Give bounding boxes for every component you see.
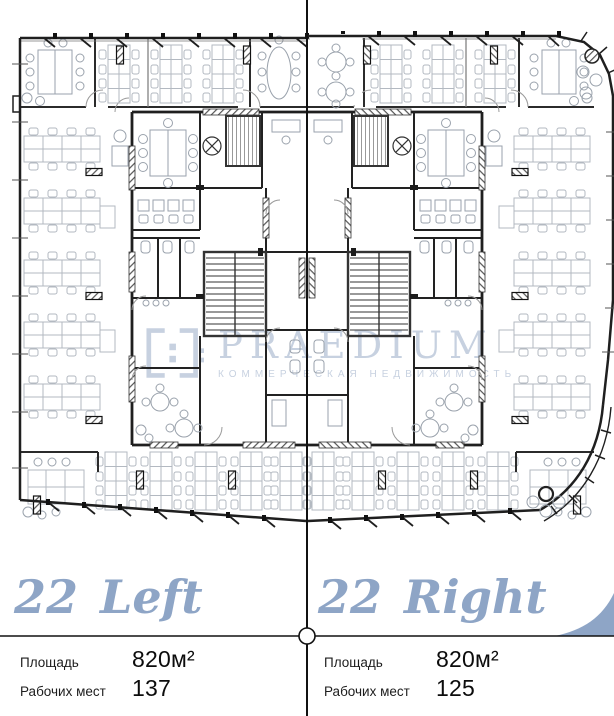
corner-lounge xyxy=(527,49,602,517)
unit-title-left: 22Left xyxy=(14,574,203,620)
area-label: Площадь xyxy=(324,655,436,670)
unit-number: 22 xyxy=(318,570,382,624)
unit-name: Right xyxy=(404,570,547,624)
unit-name: Left xyxy=(100,570,203,624)
unit-stats-left: Площадь 820м² Рабочих мест 137 xyxy=(20,646,195,702)
unit-title-right: 22Right xyxy=(318,574,547,620)
workplaces-label: Рабочих мест xyxy=(324,684,436,699)
unit-stats-right: Площадь 820м² Рабочих мест 125 xyxy=(324,646,499,702)
area-value: 820м² xyxy=(436,646,499,673)
corner-accent-swoosh xyxy=(552,593,614,637)
area-value: 820м² xyxy=(132,646,195,673)
workplaces-value: 137 xyxy=(132,675,195,702)
workplaces-label: Рабочих мест xyxy=(20,684,132,699)
unit-number: 22 xyxy=(14,570,78,624)
area-label: Площадь xyxy=(20,655,132,670)
floor-plan-right-wing xyxy=(303,31,614,529)
floor-plan-page: PRAEDIUM КОММЕРЧЕСКАЯ НЕДВИЖИМОСТЬ xyxy=(0,0,614,716)
workplaces-value: 125 xyxy=(436,675,499,702)
divider-connector-circle xyxy=(299,628,315,644)
right-center-room xyxy=(310,34,362,108)
floor-plan-left-wing xyxy=(12,33,311,527)
